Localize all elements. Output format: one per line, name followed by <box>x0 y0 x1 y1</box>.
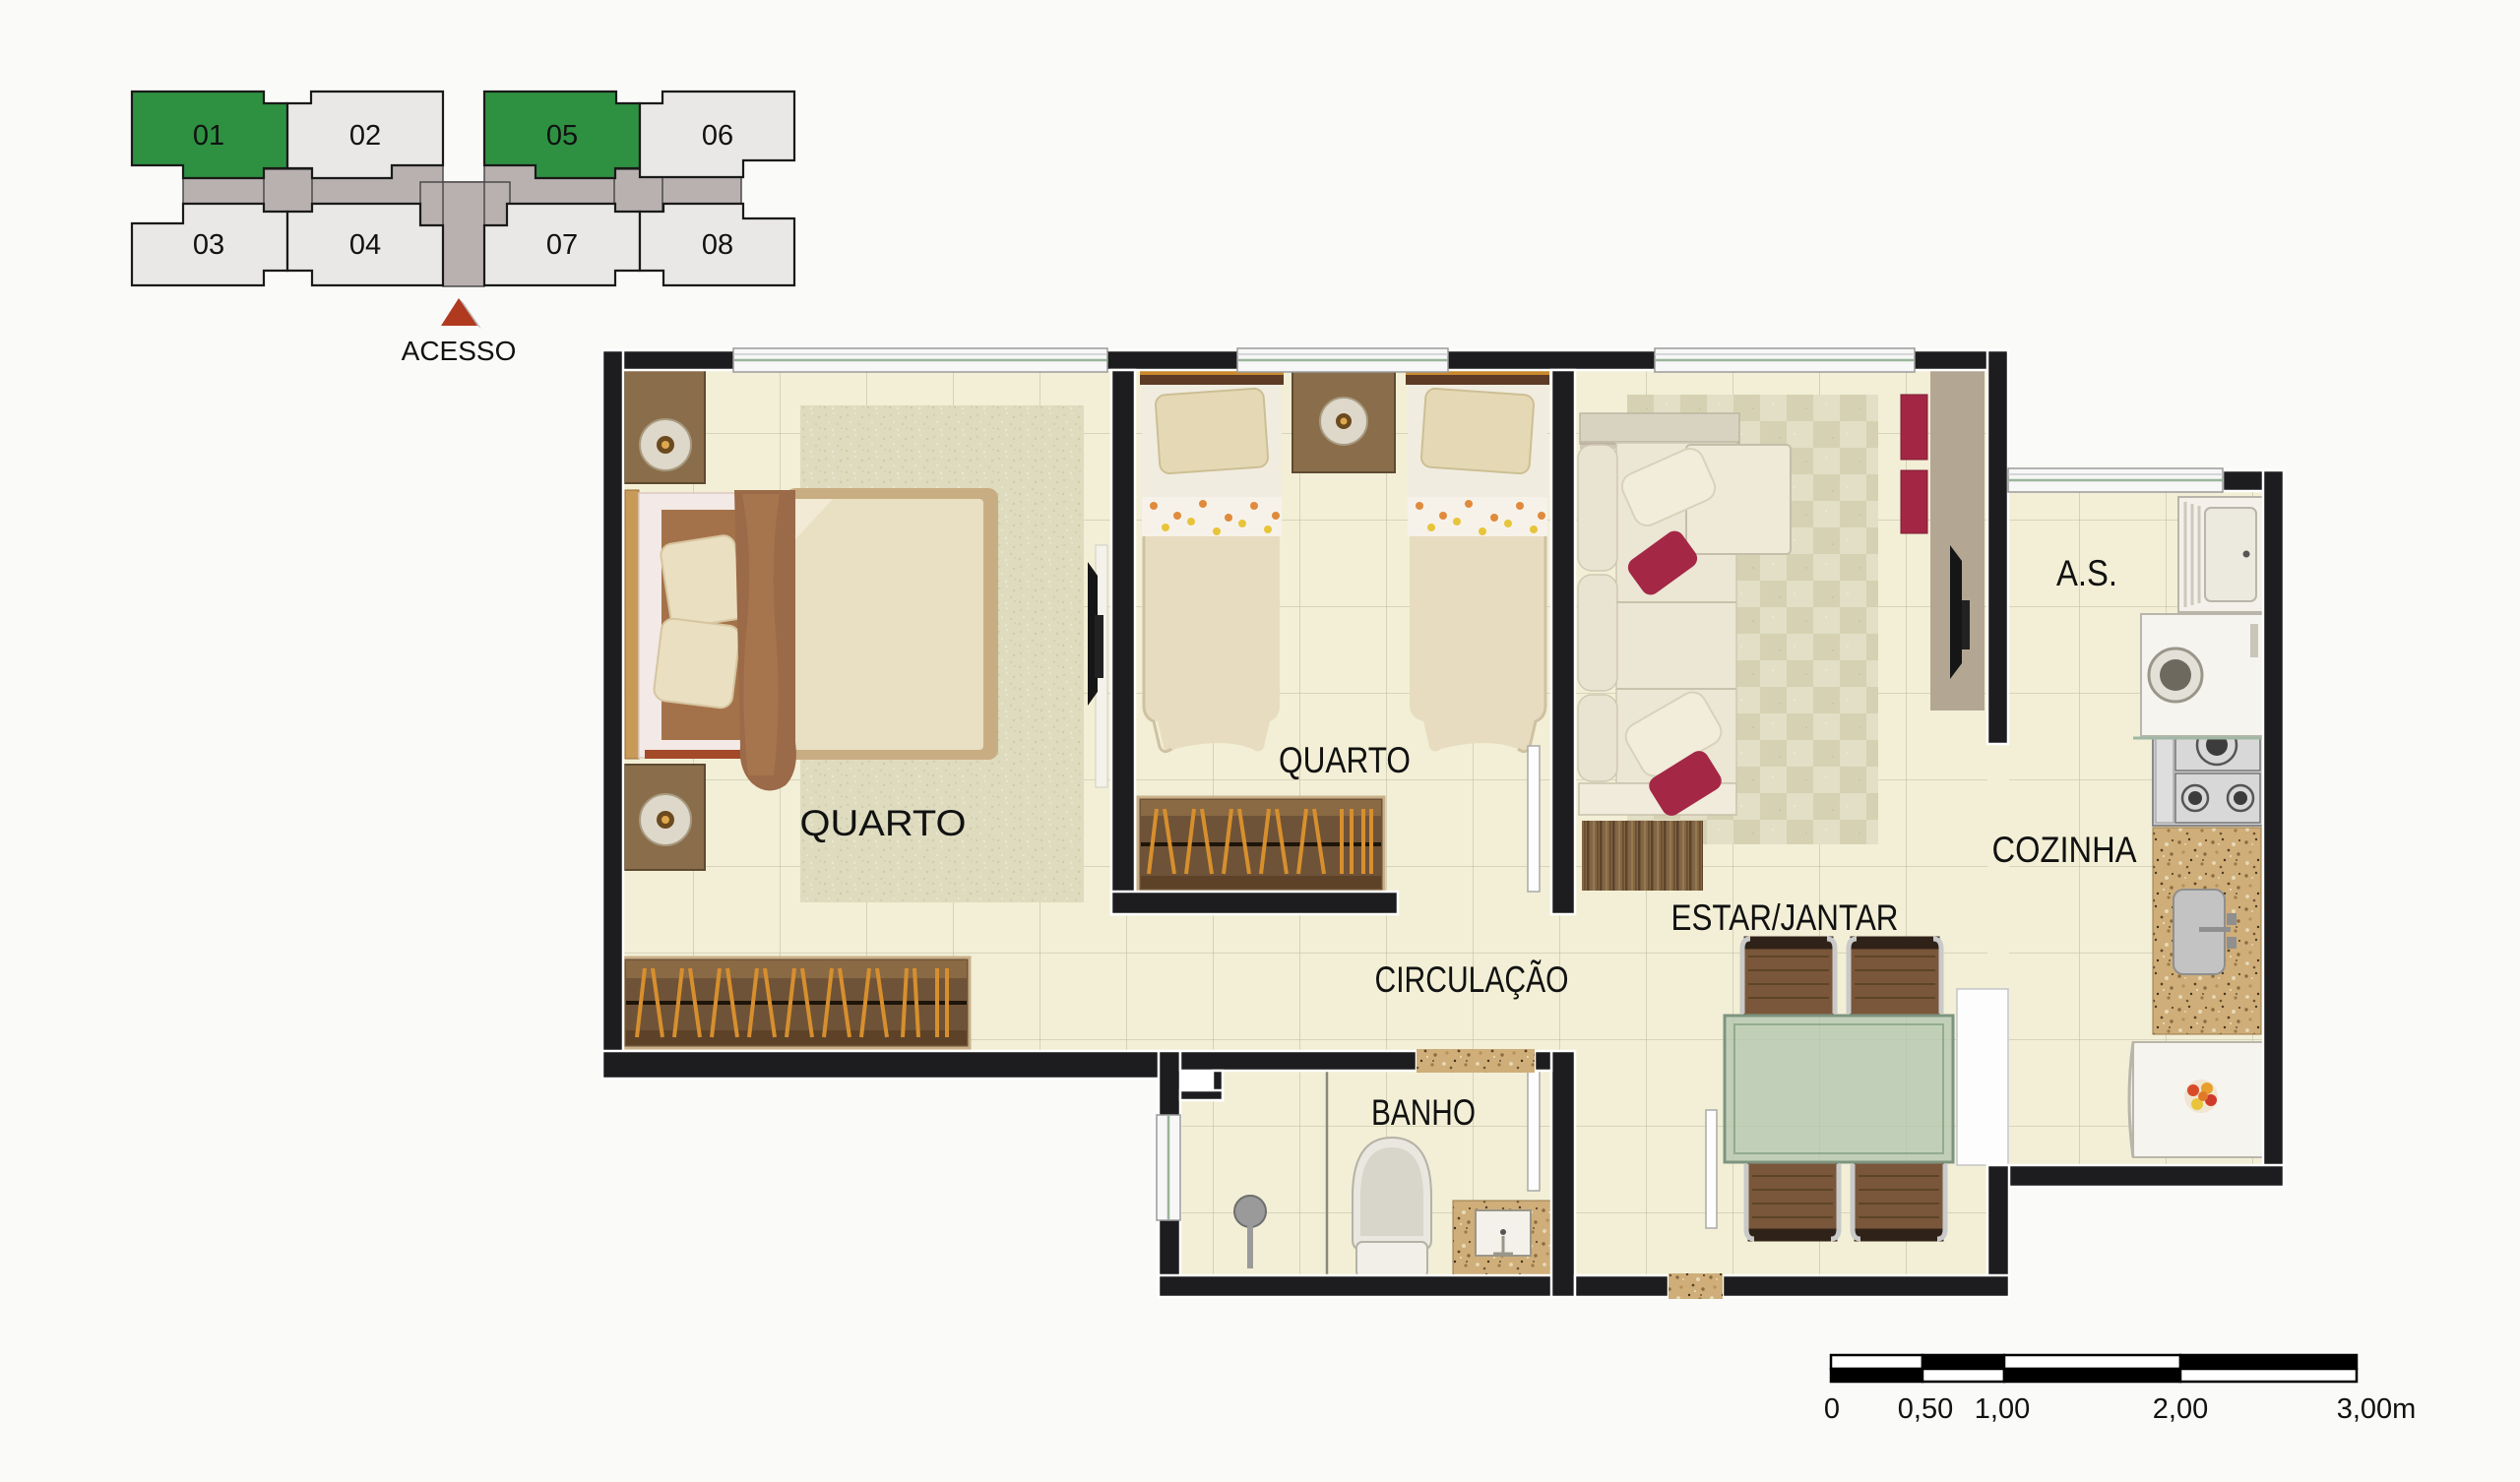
svg-text:08: 08 <box>702 229 733 261</box>
svg-text:0: 0 <box>1824 1393 1840 1425</box>
svg-text:0,50: 0,50 <box>1898 1393 1953 1425</box>
svg-text:BANHO: BANHO <box>1371 1092 1476 1133</box>
svg-text:3,00m: 3,00m <box>2337 1393 2417 1425</box>
svg-text:COZINHA: COZINHA <box>1992 830 2137 870</box>
svg-text:QUARTO: QUARTO <box>1279 740 1411 780</box>
svg-text:04: 04 <box>349 229 381 261</box>
svg-text:ACESSO: ACESSO <box>402 336 517 366</box>
svg-text:A.S.: A.S. <box>2056 553 2117 593</box>
svg-text:06: 06 <box>702 120 733 152</box>
svg-text:ESTAR/JANTAR: ESTAR/JANTAR <box>1671 897 1899 938</box>
svg-text:QUARTO: QUARTO <box>800 803 967 843</box>
svg-text:05: 05 <box>546 120 578 152</box>
svg-text:07: 07 <box>546 229 578 261</box>
svg-text:01: 01 <box>193 120 224 152</box>
svg-text:CIRCULAÇÃO: CIRCULAÇÃO <box>1375 959 1569 1000</box>
svg-text:03: 03 <box>193 229 224 261</box>
svg-text:2,00: 2,00 <box>2153 1393 2208 1425</box>
svg-text:1,00: 1,00 <box>1975 1393 2030 1425</box>
svg-text:02: 02 <box>349 120 381 152</box>
